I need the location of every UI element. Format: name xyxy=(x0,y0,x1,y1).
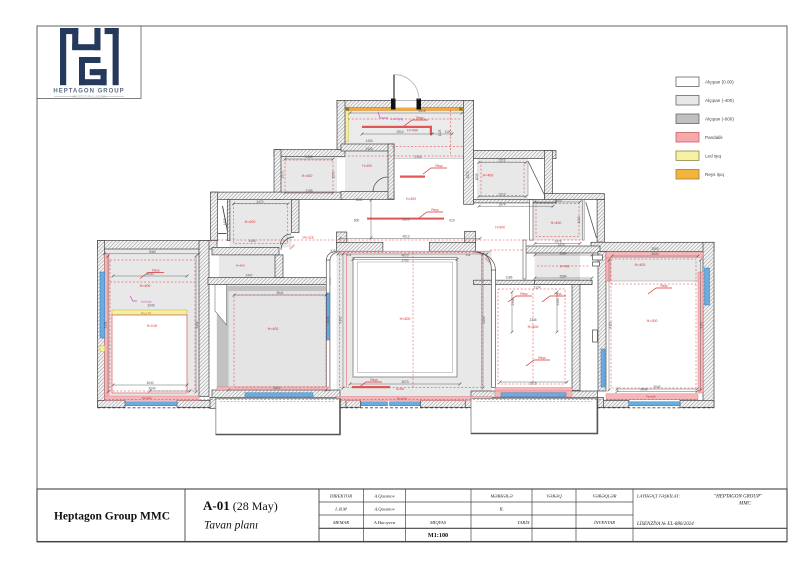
svg-text:A.Qasımov: A.Qasımov xyxy=(373,494,395,499)
svg-text:VƏRƏQ: VƏRƏQ xyxy=(546,494,562,499)
svg-text:4151: 4151 xyxy=(609,321,613,328)
svg-text:H=500: H=500 xyxy=(400,317,411,321)
svg-text:Alçıpan (-400): Alçıpan (-400) xyxy=(705,98,734,103)
svg-text:A.Hacıyeva: A.Hacıyeva xyxy=(373,520,396,525)
svg-text:Pandalik: Pandalik xyxy=(397,396,408,400)
svg-text:Pandalik: Pandalik xyxy=(646,395,657,399)
svg-text:Pandalik: Pandalik xyxy=(705,135,723,140)
svg-text:5060: 5060 xyxy=(149,250,156,254)
svg-text:Reys: Reys xyxy=(520,292,528,296)
svg-text:3641: 3641 xyxy=(276,291,283,295)
svg-text:2584: 2584 xyxy=(559,275,566,279)
svg-text:3040: 3040 xyxy=(640,388,647,392)
svg-text:2096: 2096 xyxy=(554,199,561,203)
svg-text:H=0.00: H=0.00 xyxy=(147,324,158,328)
svg-text:4157: 4157 xyxy=(700,321,704,328)
svg-text:2470: 2470 xyxy=(256,200,263,204)
svg-text:MİQYAS: MİQYAS xyxy=(429,520,447,525)
svg-text:Pandalik: Pandalik xyxy=(142,396,153,400)
svg-text:İNVENTAR: İNVENTAR xyxy=(593,520,615,525)
svg-text:M1:100: M1:100 xyxy=(428,532,448,539)
svg-text:2478: 2478 xyxy=(557,243,564,247)
svg-text:3641: 3641 xyxy=(273,386,280,390)
svg-text:3010: 3010 xyxy=(402,218,409,222)
svg-text:Alçıpan (0.00): Alçıpan (0.00) xyxy=(705,80,734,85)
svg-text:H=500: H=500 xyxy=(528,325,539,329)
svg-text:3124: 3124 xyxy=(533,286,540,290)
svg-text:H=400: H=400 xyxy=(560,265,570,269)
svg-text:2150: 2150 xyxy=(414,155,421,159)
svg-text:2434: 2434 xyxy=(482,316,486,323)
svg-text:2584: 2584 xyxy=(559,251,566,255)
svg-text:H=400: H=400 xyxy=(407,129,418,133)
svg-text:Reys işıq: Reys işıq xyxy=(705,172,724,177)
svg-text:2336: 2336 xyxy=(529,318,536,322)
svg-text:800: 800 xyxy=(354,218,360,222)
svg-text:LİSENZİYA № EL-886/2024: LİSENZİYA № EL-886/2024 xyxy=(636,521,694,527)
svg-text:3040: 3040 xyxy=(148,387,155,391)
svg-text:2434: 2434 xyxy=(326,316,330,323)
svg-text:3040: 3040 xyxy=(653,385,660,389)
svg-text:4613: 4613 xyxy=(402,235,409,239)
svg-text:H=400: H=400 xyxy=(362,164,372,168)
svg-text:3040: 3040 xyxy=(146,381,153,385)
svg-text:3PL/3ZE: 3PL/3ZE xyxy=(302,236,314,240)
svg-text:"HEPTAGON GROUP": "HEPTAGON GROUP" xyxy=(714,495,763,500)
svg-text:N=400: N=400 xyxy=(236,264,245,268)
svg-text:Reys: Reys xyxy=(431,208,439,212)
svg-text:H=400: H=400 xyxy=(635,263,646,267)
svg-text:1573: 1573 xyxy=(332,171,336,178)
svg-text:Reys: Reys xyxy=(660,284,668,288)
svg-text:2140: 2140 xyxy=(556,298,560,305)
svg-text:N=400: N=400 xyxy=(396,387,405,391)
svg-text:H=300: H=300 xyxy=(406,197,416,201)
svg-text:Reys: Reys xyxy=(554,292,562,296)
svg-text:Reys: Reys xyxy=(435,164,443,168)
svg-text:Reys 60: Reys 60 xyxy=(141,311,152,315)
svg-text:A-01 (28 May): A-01 (28 May) xyxy=(203,498,278,513)
svg-text:3040: 3040 xyxy=(651,252,658,256)
svg-text:4673: 4673 xyxy=(401,254,408,258)
svg-text:VƏRƏQLƏR: VƏRƏQLƏR xyxy=(593,494,617,499)
svg-text:TARİX: TARİX xyxy=(517,520,529,525)
svg-text:2188: 2188 xyxy=(305,189,312,193)
svg-text:1874: 1874 xyxy=(498,203,505,207)
svg-text:Led işıq: Led işıq xyxy=(141,300,152,304)
svg-text:Heptagon Group MMC: Heptagon Group MMC xyxy=(54,511,170,523)
svg-text:Tavan planı: Tavan planı xyxy=(204,520,258,532)
svg-text:415: 415 xyxy=(330,249,336,253)
svg-text:ARCHITECTURAL & DESIGN: ARCHITECTURAL & DESIGN xyxy=(72,96,106,99)
svg-text:4573: 4573 xyxy=(401,380,408,384)
svg-text:H=400: H=400 xyxy=(140,284,151,288)
svg-text:Alçıpan (-600): Alçıpan (-600) xyxy=(705,117,734,122)
svg-text:A.Qasımov: A.Qasımov xyxy=(373,507,395,512)
svg-text:MMC: MMC xyxy=(738,502,751,507)
svg-text:3240: 3240 xyxy=(147,304,154,308)
svg-text:1434: 1434 xyxy=(248,239,255,243)
svg-text:1415: 1415 xyxy=(223,218,227,225)
svg-text:2210: 2210 xyxy=(498,159,505,163)
svg-text:416: 416 xyxy=(347,253,352,257)
svg-text:4518: 4518 xyxy=(418,109,425,113)
svg-text:1430: 1430 xyxy=(365,139,372,143)
svg-text:Led işıq: Led işıq xyxy=(705,154,722,159)
svg-text:1430: 1430 xyxy=(365,147,372,151)
svg-text:Reys: Reys xyxy=(538,356,546,360)
svg-text:3516: 3516 xyxy=(529,382,536,386)
svg-text:DİREKTOR: DİREKTOR xyxy=(329,494,352,499)
svg-text:Reys: Reys xyxy=(152,268,160,272)
svg-text:H=300: H=300 xyxy=(647,319,658,323)
svg-text:İL: İL xyxy=(498,507,504,512)
svg-text:Reys: Reys xyxy=(416,116,424,120)
svg-text:H=400: H=400 xyxy=(302,174,313,178)
svg-text:H=300: H=300 xyxy=(495,226,505,230)
svg-text:610: 610 xyxy=(449,218,455,222)
svg-text:1100: 1100 xyxy=(356,198,363,202)
svg-text:4142: 4142 xyxy=(339,316,343,323)
svg-text:1573: 1573 xyxy=(281,171,285,178)
svg-text:HEPTAGON GROUP: HEPTAGON GROUP xyxy=(53,89,124,95)
svg-text:H=400: H=400 xyxy=(483,174,494,178)
svg-text:2910: 2910 xyxy=(396,130,403,134)
svg-text:2188: 2188 xyxy=(305,155,312,159)
svg-text:3590: 3590 xyxy=(651,247,658,251)
svg-text:1123: 1123 xyxy=(438,129,442,136)
svg-text:2447: 2447 xyxy=(245,274,252,278)
svg-text:1635: 1635 xyxy=(475,173,479,180)
svg-text:4142: 4142 xyxy=(195,321,199,328)
svg-text:MEMAR: MEMAR xyxy=(332,520,349,525)
svg-text:Led işıq: Led işıq xyxy=(391,117,402,121)
svg-text:L.B.M: L.B.M xyxy=(334,507,348,512)
svg-text:Reys: Reys xyxy=(370,378,378,382)
svg-text:1410: 1410 xyxy=(577,216,581,223)
svg-text:1186: 1186 xyxy=(506,276,513,280)
svg-text:416: 416 xyxy=(466,253,471,257)
svg-text:MƏRHƏLƏ: MƏRHƏLƏ xyxy=(489,494,513,499)
svg-text:H=400: H=400 xyxy=(245,220,256,224)
svg-text:H=400: H=400 xyxy=(551,221,562,225)
svg-text:H=400: H=400 xyxy=(268,327,279,331)
svg-text:1100: 1100 xyxy=(445,130,452,134)
svg-text:1573: 1573 xyxy=(466,171,470,178)
svg-text:3750: 3750 xyxy=(401,259,408,263)
svg-text:2210: 2210 xyxy=(498,193,505,197)
svg-text:LAYİHƏÇİ TƏŞKİLAT:: LAYİHƏÇİ TƏŞKİLAT: xyxy=(636,494,681,499)
svg-text:3141: 3141 xyxy=(104,321,108,328)
